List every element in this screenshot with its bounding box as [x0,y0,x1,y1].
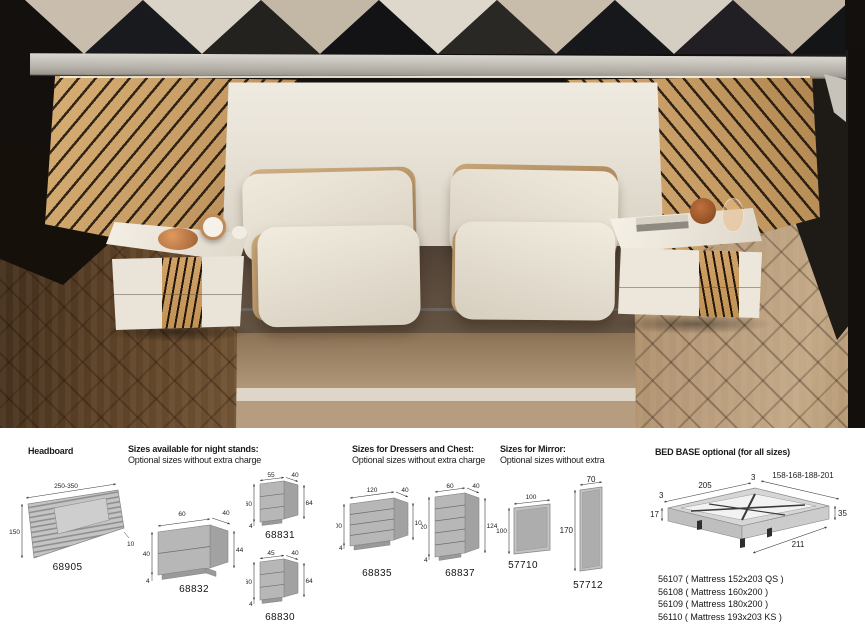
dim-57712-width: 70 [587,476,596,484]
nightstands-title: Sizes available for night stands: [128,444,261,455]
dim-68831-top: 55 [267,472,275,479]
dim-57712-height: 170 [560,526,574,535]
bedbase-model-56110: 56110 ( Mattress 193x203 KS ) [658,611,784,624]
nightstand-68832-diagram: 60 40 40 44 4 [142,504,246,588]
catalog-page: Headboard Sizes available for night stan… [0,0,865,640]
dim-68830-depth: 40 [291,550,299,557]
dim-68837-left: 120 [421,524,427,531]
dim-bedbase-total-length: 211 [792,540,805,549]
dim-68837-base: 4 [424,557,428,563]
mirror-section-header: Sizes for Mirror: Optional sizes without… [500,444,604,466]
dim-68831-left: 60 [246,501,252,508]
dim-bedbase-widths: 158-168-188-201 [772,471,834,480]
mirror-title: Sizes for Mirror: [500,444,604,455]
nightstand-68832-code: 68832 [142,584,246,595]
dim-68831-base: 4 [249,523,253,530]
bedbase-diagram: 205 3 3 158-168-188-201 17 35 211 [645,466,860,566]
dressers-title: Sizes for Dressers and Chest: [352,444,485,455]
headboard-rail [30,53,846,79]
vase [722,198,744,232]
decor-bowl [158,228,198,250]
pillow-white-front-left [257,225,421,328]
headboard-section-title: Headboard [28,446,73,457]
dim-bedbase-length: 205 [698,481,712,490]
dim-68831-depth: 40 [291,472,299,479]
nightstand-right-front [618,248,762,318]
nightstand-68830-code: 68830 [246,612,314,623]
nightstand-left-drawer-line [112,294,244,295]
dresser-68835-code: 68835 [336,568,418,579]
dim-68835-depth: 40 [401,487,409,494]
dim-headboard-depth: 10 [127,541,135,548]
bedbase-model-56107: 56107 ( Mattress 152x203 QS ) [658,573,784,586]
led-strip [60,76,810,78]
chest-68837-code: 68837 [421,568,499,579]
mirror-57712-code: 57712 [560,580,616,591]
bedbase-model-56109: 56109 ( Mattress 180x200 ) [658,598,784,611]
dim-bedbase-side-left: 3 [659,491,664,500]
mirror-57712-diagram: 70 170 [556,476,612,578]
dim-68835-top: 120 [367,487,378,494]
bedbase-model-list: 56107 ( Mattress 152x203 QS ) 56108 ( Ma… [658,573,784,623]
dim-57710-height: 100 [496,528,507,535]
nightstand-68830-diagram: 45 40 60 64 4 [246,550,314,608]
nightstand-left-slat-insert [162,256,202,330]
dim-68832-depth: 40 [222,510,230,517]
dim-68837-top: 60 [446,483,454,490]
nightstand-68831-diagram: 55 40 60 64 4 [246,472,314,530]
headboard-code: 68905 [10,562,125,573]
bedbase-title: BED BASE optional (for all sizes) [655,447,790,458]
dim-57710-width: 100 [526,494,537,501]
dim-68830-base: 4 [249,601,253,608]
decor-cup [232,226,247,239]
dim-bedbase-total-height: 35 [838,509,847,518]
bedbase-model-56108: 56108 ( Mattress 160x200 ) [658,586,784,599]
dresser-68835-diagram: 120 40 100 104 4 [336,487,422,551]
wall-right-edge [848,50,865,428]
dim-headboard-width: 250-350 [54,483,78,490]
dim-68831-right: 64 [306,500,314,507]
duvet-bottom [236,401,636,428]
dim-bedbase-side-mid: 3 [751,473,756,482]
dim-68830-top: 45 [267,550,275,557]
chest-68837-diagram: 60 40 120 124 4 [421,483,499,563]
nightstand-68831-code: 68831 [246,530,314,541]
dim-68830-left: 60 [246,579,252,586]
nightstands-section-header: Sizes available for night stands: Option… [128,444,261,466]
mirror-57710-code: 57710 [492,560,554,571]
duvet [236,333,636,388]
product-photo [0,0,865,428]
nightstand-right-drawer-line [618,287,762,288]
dim-68835-base: 4 [339,545,343,551]
dim-68835-left: 100 [336,523,342,530]
dim-68830-right: 64 [306,578,314,585]
dim-68832-top: 60 [178,511,186,518]
dressers-section-header: Sizes for Dressers and Chest: Optional s… [352,444,485,466]
pillow-white-front-right [455,221,616,320]
mirror-57710-diagram: 100 100 [492,494,554,558]
mirror-subtitle: Optional sizes without extra [500,455,604,466]
wall-art [25,0,845,54]
dressers-subtitle: Optional sizes without extra charge [352,455,485,466]
dim-68837-depth: 40 [472,483,480,490]
nightstands-subtitle: Optional sizes without extra charge [128,455,261,466]
nightstand-left-front [112,256,244,330]
plant [690,198,716,224]
dim-68832-right: 44 [236,547,244,554]
headboard-diagram: 250-350 150 10 [8,480,140,562]
alarm-clock [200,214,226,240]
nightstand-right-slat-insert [699,248,739,318]
dim-headboard-height: 150 [9,529,20,536]
dim-68832-left: 40 [143,551,151,558]
sheet-fold [236,388,636,401]
dim-bedbase-frame-height: 17 [650,510,659,519]
